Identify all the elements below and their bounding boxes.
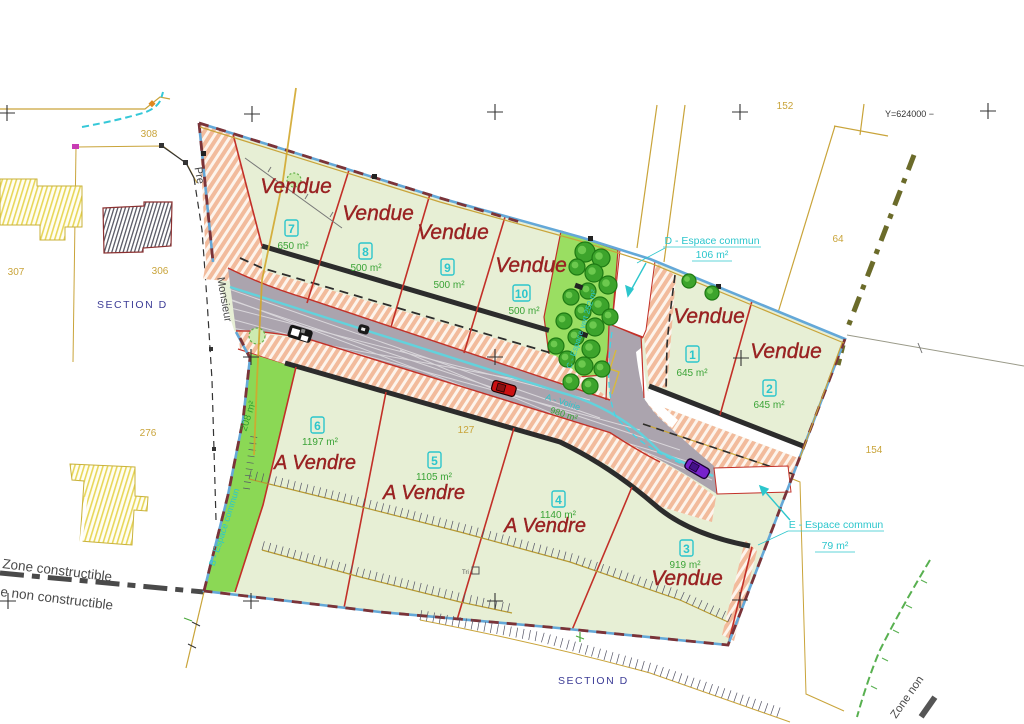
svg-text:1105 m²: 1105 m²: [416, 472, 453, 483]
svg-text:152: 152: [777, 101, 794, 112]
svg-text:79 m²: 79 m²: [822, 540, 849, 552]
svg-text:Y=624000 −: Y=624000 −: [885, 109, 934, 119]
svg-text:A Vendre: A Vendre: [273, 452, 356, 474]
svg-text:SECTION D: SECTION D: [558, 675, 629, 687]
svg-text:e non constructible: e non constructible: [0, 584, 114, 613]
svg-text:Vendue: Vendue: [495, 254, 567, 277]
svg-text:276: 276: [140, 428, 157, 439]
svg-text:154: 154: [866, 445, 883, 456]
svg-text:645 m²: 645 m²: [753, 400, 785, 411]
svg-text:Tri: Tri: [462, 570, 469, 576]
svg-text:Vendue: Vendue: [673, 305, 745, 328]
svg-text:919 m²: 919 m²: [669, 560, 701, 571]
svg-text:500 m²: 500 m²: [508, 306, 540, 317]
svg-text:2: 2: [766, 382, 773, 396]
svg-text:106 m²: 106 m²: [696, 249, 729, 261]
svg-text:Vendue: Vendue: [417, 221, 489, 244]
svg-text:4: 4: [555, 493, 562, 507]
svg-text:E - Espace commun: E - Espace commun: [789, 519, 884, 531]
svg-text:SECTION D: SECTION D: [97, 299, 168, 311]
svg-text:306: 306: [152, 266, 169, 277]
svg-text:1: 1: [689, 348, 696, 362]
svg-text:D - Espace commun: D - Espace commun: [664, 235, 759, 247]
svg-text:127: 127: [458, 425, 475, 436]
svg-text:1140 m²: 1140 m²: [540, 510, 577, 521]
svg-text:Vendue: Vendue: [750, 340, 822, 363]
svg-text:A Vendre: A Vendre: [382, 482, 465, 504]
svg-text:10: 10: [515, 287, 529, 301]
svg-text:500 m²: 500 m²: [350, 263, 382, 274]
svg-text:645 m²: 645 m²: [676, 368, 708, 379]
svg-text:64: 64: [832, 234, 844, 245]
svg-text:8: 8: [362, 245, 369, 259]
svg-text:307: 307: [8, 267, 25, 278]
svg-text:5: 5: [431, 454, 438, 468]
svg-text:7: 7: [288, 222, 295, 236]
svg-text:500 m²: 500 m²: [433, 280, 465, 291]
svg-text:6: 6: [314, 419, 321, 433]
svg-text:650 m²: 650 m²: [277, 241, 309, 252]
svg-text:Vendue: Vendue: [260, 175, 332, 198]
svg-text:Vendue: Vendue: [342, 202, 414, 225]
svg-text:3: 3: [683, 542, 690, 556]
svg-text:308: 308: [141, 129, 158, 140]
svg-text:9: 9: [444, 261, 451, 275]
svg-text:Pre: Pre: [192, 166, 207, 185]
svg-text:1197 m²: 1197 m²: [302, 437, 339, 448]
